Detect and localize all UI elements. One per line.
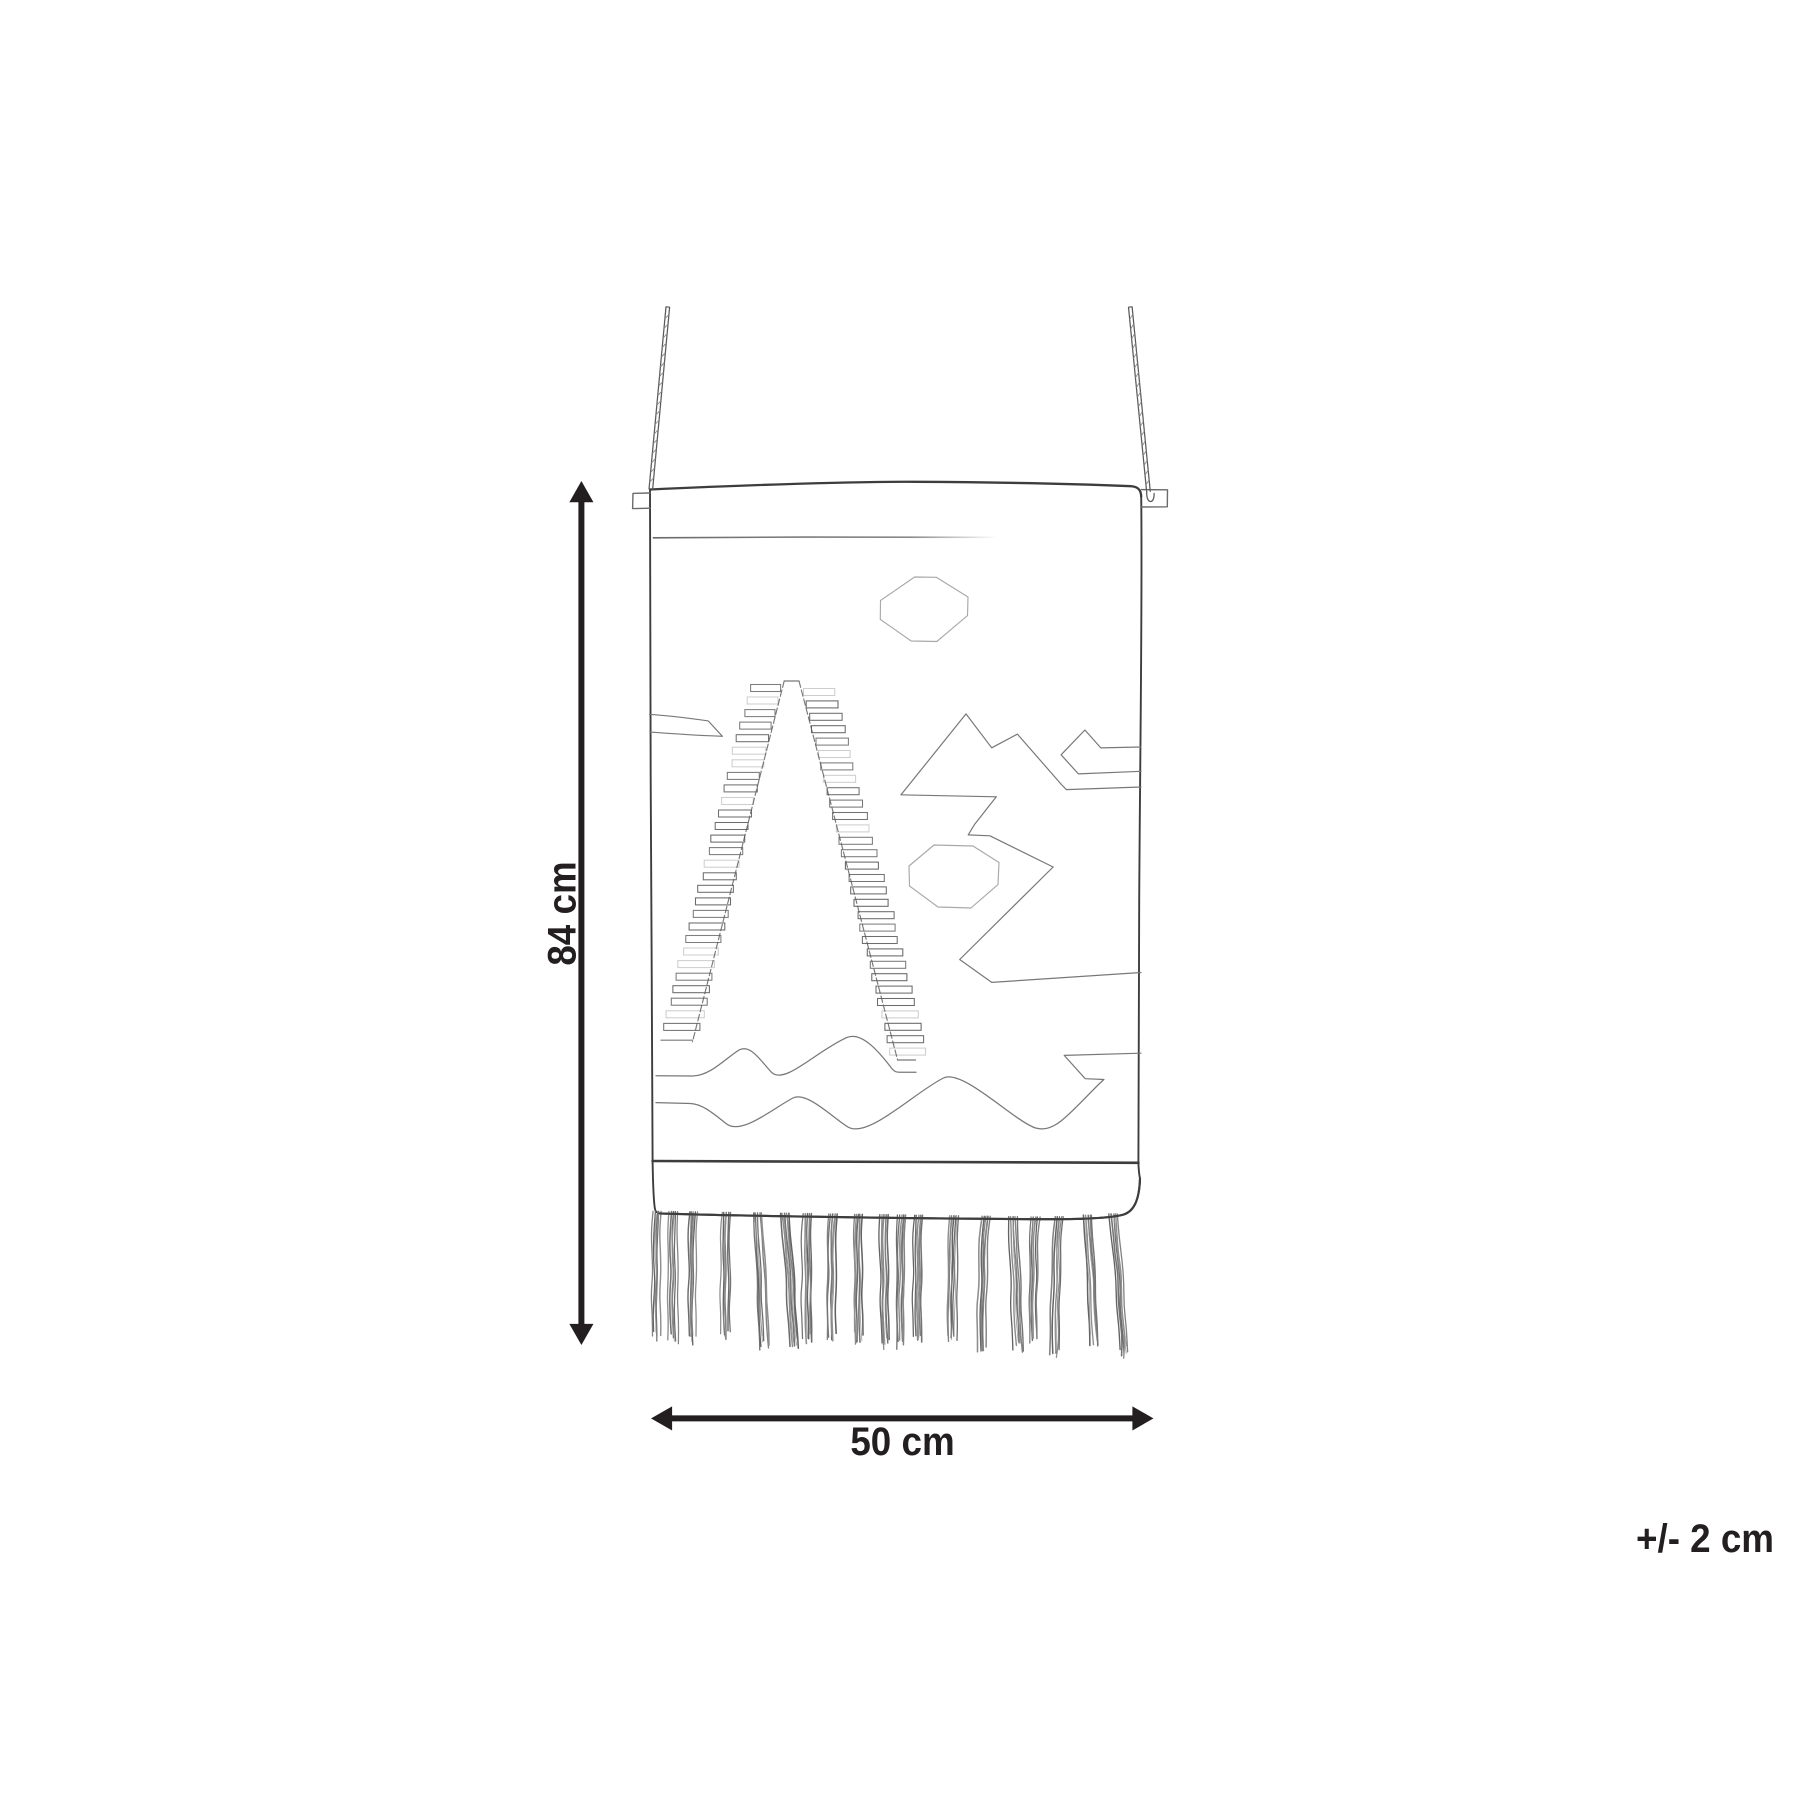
- svg-text:50 cm: 50 cm: [850, 1420, 954, 1465]
- svg-text:+/- 2 cm: +/- 2 cm: [1636, 1517, 1774, 1562]
- svg-text:84 cm: 84 cm: [540, 861, 585, 965]
